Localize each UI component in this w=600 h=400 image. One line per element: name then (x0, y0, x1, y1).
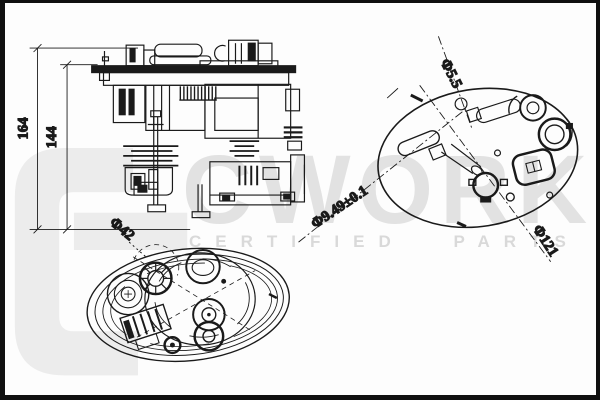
center-lines (299, 36, 551, 261)
reservoir-bottom-view: Φ42 (81, 215, 295, 371)
hatched-ring-spokes (140, 263, 172, 294)
bottom-comb (239, 166, 257, 186)
flange-top-view: Φ5.5 Φ9.49±0.1 Φ121 (299, 36, 588, 261)
electrical-connector (511, 148, 557, 187)
pump-module-side-view: 164 144 (16, 40, 305, 233)
fill-limiter-stripes (284, 127, 303, 137)
connector-pin-comb (179, 86, 216, 100)
dim-label-hole: Φ5.5 (437, 56, 465, 90)
dim-label-port: Φ9.49±0.1 (308, 183, 371, 232)
dim-label-flange: Φ121 (529, 222, 561, 259)
right-spring-coils (230, 141, 260, 156)
dim-label-144: 144 (44, 126, 60, 149)
left-spring-coils (123, 146, 178, 166)
dim-label-164: 164 (16, 117, 32, 140)
scanned-diagram-page: CWORKS CERTIFIED PARTS (0, 0, 600, 400)
dim-label-bottom: Φ42 (106, 215, 137, 244)
technical-drawing: 164 144 (5, 3, 596, 395)
